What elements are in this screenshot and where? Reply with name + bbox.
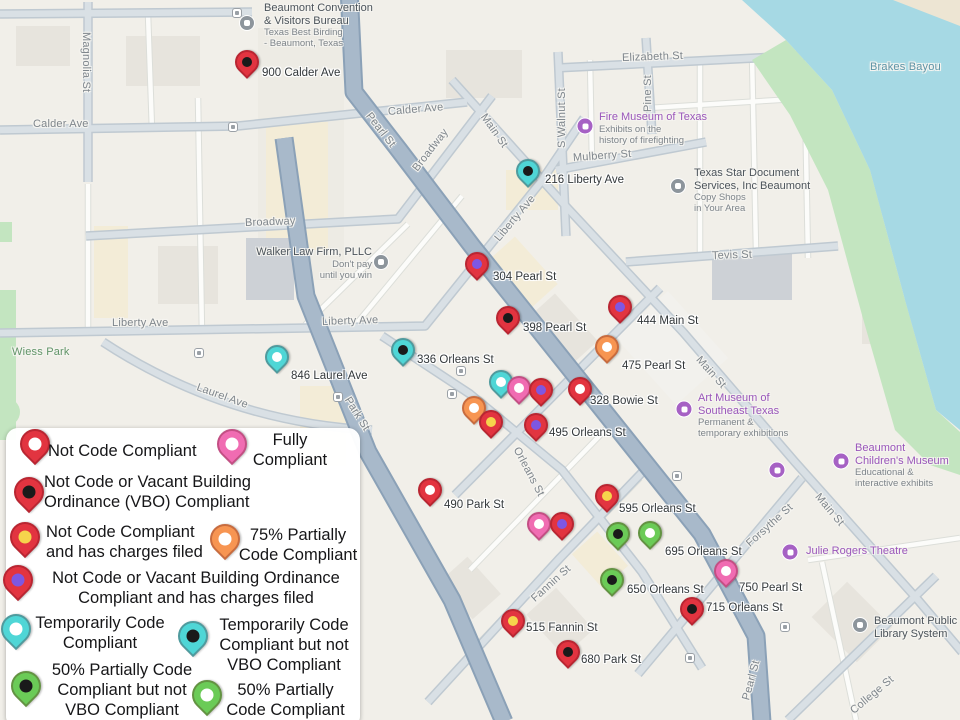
legend-item-label: Temporarily Code Compliant but not VBO C… bbox=[205, 615, 363, 675]
poi-label[interactable]: Beaumont Children's MuseumEducational & … bbox=[855, 442, 949, 489]
legend-pin-red-purple bbox=[0, 559, 39, 601]
map-pin-red-black[interactable] bbox=[491, 301, 525, 335]
street-label: Fannin St bbox=[529, 563, 573, 605]
pin-address-label: 595 Orleans St bbox=[619, 503, 696, 515]
map-pin-red-purple[interactable] bbox=[519, 408, 553, 442]
street-label: College St bbox=[848, 673, 896, 716]
poi-subtitle: Educational & interactive exhibits bbox=[855, 467, 949, 489]
poi-label[interactable]: Walker Law Firm, PLLCDon't pay until you… bbox=[256, 246, 372, 281]
pin-address-label: 715 Orleans St bbox=[706, 602, 783, 614]
shop-icon[interactable] bbox=[670, 178, 686, 194]
poi-glyph bbox=[244, 20, 250, 26]
map-pin-green-black[interactable] bbox=[595, 563, 629, 597]
street-label: Pearl St bbox=[740, 659, 762, 701]
poi-title: Julie Rogers Theatre bbox=[806, 545, 908, 558]
street-label: Wiess Park bbox=[12, 346, 70, 358]
street-label: Forsythe St bbox=[744, 501, 795, 549]
pin-address-label: 650 Orleans St bbox=[627, 584, 704, 596]
poi-title: Texas Star Document Services, Inc Beaumo… bbox=[694, 167, 810, 192]
map-viewport[interactable]: Magnolia StCalder AveCalder AveBroadwayB… bbox=[0, 0, 960, 720]
legend-panel: Not Code CompliantFully CompliantNot Cod… bbox=[6, 428, 360, 720]
pin-address-label: 475 Pearl St bbox=[622, 360, 685, 372]
map-pin-green-black[interactable] bbox=[601, 517, 635, 551]
street-label: Elizabeth St bbox=[622, 50, 683, 64]
map-pin-red-purple[interactable] bbox=[524, 373, 558, 407]
legend-item-label: Temporarily Code Compliant bbox=[30, 613, 170, 653]
poi-subtitle: Don't pay until you win bbox=[256, 259, 372, 281]
pin-address-label: 398 Pearl St bbox=[523, 322, 586, 334]
theatre-icon[interactable] bbox=[782, 544, 799, 561]
poi-label[interactable]: Fire Museum of TexasExhibits on the hist… bbox=[599, 111, 707, 146]
street-label: Laurel Ave bbox=[195, 381, 250, 411]
legend-pin-green-black bbox=[5, 665, 47, 707]
legend-item-label: Not Code or Vacant Building Ordinance Co… bbox=[36, 568, 356, 608]
legend-item-label: Not Code Compliant and has charges filed bbox=[46, 522, 216, 562]
museum-icon[interactable] bbox=[577, 118, 594, 135]
map-pin-red-purple[interactable] bbox=[460, 247, 494, 281]
street-label: Main St bbox=[478, 112, 510, 151]
pin-address-label: 900 Calder Ave bbox=[262, 67, 340, 79]
poi-subtitle: Permanent & temporary exhibitions bbox=[698, 417, 788, 439]
street-label: Calder Ave bbox=[33, 118, 89, 130]
pin-address-label: 216 Liberty Ave bbox=[545, 174, 624, 186]
map-pin-red-white[interactable] bbox=[413, 473, 447, 507]
briefcase-icon[interactable] bbox=[373, 254, 389, 270]
street-label: Orleans St bbox=[511, 445, 547, 498]
poi-subtitle: Texas Best Birding - Beaumont, Texas bbox=[264, 27, 373, 49]
map-pin-teal-black[interactable] bbox=[511, 154, 545, 188]
street-label: Calder Ave bbox=[387, 101, 443, 118]
legend-item-label: 75% Partially Code Compliant bbox=[233, 525, 363, 565]
street-label: Brakes Bayou bbox=[870, 61, 941, 73]
street-label: Broadway bbox=[410, 126, 451, 173]
poi-glyph bbox=[838, 458, 844, 464]
map-pin-red-purple[interactable] bbox=[545, 507, 579, 541]
poi-glyph bbox=[857, 622, 863, 628]
poi-label[interactable]: Art Museum of Southeast TexasPermanent &… bbox=[698, 392, 788, 439]
transit-stop-icon bbox=[685, 653, 695, 663]
poi-glyph bbox=[681, 406, 687, 412]
legend-item-label: Not Code Compliant bbox=[48, 441, 223, 461]
museum-icon[interactable] bbox=[833, 453, 850, 470]
poi-title: Fire Museum of Texas bbox=[599, 111, 707, 124]
museum-icon[interactable] bbox=[676, 401, 693, 418]
map-pin-red-black[interactable] bbox=[230, 45, 264, 79]
building-icon[interactable] bbox=[239, 15, 255, 31]
library-icon[interactable] bbox=[852, 617, 868, 633]
transit-stop-icon bbox=[672, 471, 682, 481]
map-pin-green-white[interactable] bbox=[633, 516, 667, 550]
transit-stop-icon bbox=[447, 389, 457, 399]
street-label: Main St bbox=[812, 491, 846, 528]
transit-stop-icon bbox=[780, 622, 790, 632]
pin-address-label: 695 Orleans St bbox=[665, 546, 742, 558]
poi-title: Beaumont Convention & Visitors Bureau bbox=[264, 2, 373, 27]
pin-address-label: 490 Park St bbox=[444, 499, 504, 511]
transit-stop-icon bbox=[194, 348, 204, 358]
poi-subtitle: Copy Shops in Your Area bbox=[694, 192, 810, 214]
street-label: Pine St bbox=[642, 75, 654, 112]
poi-glyph bbox=[378, 259, 384, 265]
museum-icon[interactable] bbox=[769, 462, 786, 479]
map-pin-teal-black[interactable] bbox=[386, 333, 420, 367]
map-pin-red-yellow[interactable] bbox=[496, 604, 530, 638]
poi-glyph bbox=[787, 549, 793, 555]
pin-address-label: 495 Orleans St bbox=[549, 427, 626, 439]
poi-label[interactable]: Texas Star Document Services, Inc Beaumo… bbox=[694, 167, 810, 214]
map-pin-red-black[interactable] bbox=[551, 635, 585, 669]
map-pin-red-purple[interactable] bbox=[603, 290, 637, 324]
street-label: Liberty Ave bbox=[112, 317, 168, 329]
legend-item-label: 50% Partially Code Compliant but not VBO… bbox=[42, 660, 202, 720]
poi-title: Art Museum of Southeast Texas bbox=[698, 392, 788, 417]
legend-item-label: Fully Compliant bbox=[240, 430, 340, 470]
street-label: Liberty Ave bbox=[322, 314, 379, 328]
street-label: S Walnut St bbox=[556, 88, 568, 148]
poi-label[interactable]: Julie Rogers Theatre bbox=[806, 545, 908, 558]
street-label: Broadway bbox=[245, 215, 296, 229]
legend-item-label: 50% Partially Code Compliant bbox=[218, 680, 353, 720]
poi-title: Beaumont Children's Museum bbox=[855, 442, 949, 467]
poi-title: Walker Law Firm, PLLC bbox=[256, 246, 372, 259]
street-label: Mulberry St bbox=[573, 148, 632, 164]
pin-address-label: 304 Pearl St bbox=[493, 271, 556, 283]
pin-address-label: 328 Bowie St bbox=[590, 395, 658, 407]
transit-stop-icon bbox=[456, 366, 466, 376]
pin-address-label: 680 Park St bbox=[581, 654, 641, 666]
street-label: Liberty Ave bbox=[492, 193, 537, 244]
poi-subtitle: Exhibits on the history of firefighting bbox=[599, 124, 707, 146]
pin-address-label: 750 Pearl St bbox=[739, 582, 802, 594]
poi-glyph bbox=[582, 123, 588, 129]
legend-item-label: Not Code or Vacant Building Ordinance (V… bbox=[44, 472, 284, 512]
map-pin-teal-white[interactable] bbox=[260, 340, 294, 374]
poi-title: Beaumont Public Library System bbox=[874, 615, 957, 640]
pin-address-label: 846 Laurel Ave bbox=[291, 370, 368, 382]
poi-glyph bbox=[774, 467, 780, 473]
map-pin-orange-white[interactable] bbox=[590, 330, 624, 364]
pin-address-label: 515 Fannin St bbox=[526, 622, 598, 634]
map-pin-red-black[interactable] bbox=[675, 592, 709, 626]
street-label: Tevis St bbox=[712, 249, 753, 262]
legend-pin-red-yellow bbox=[4, 516, 46, 558]
pin-address-label: 444 Main St bbox=[637, 315, 698, 327]
poi-glyph bbox=[675, 183, 681, 189]
poi-label[interactable]: Beaumont Convention & Visitors BureauTex… bbox=[264, 2, 373, 49]
pin-address-label: 336 Orleans St bbox=[417, 354, 494, 366]
transit-stop-icon bbox=[228, 122, 238, 132]
map-pin-pink-white[interactable] bbox=[709, 554, 743, 588]
transit-stop-icon bbox=[333, 392, 343, 402]
poi-label[interactable]: Beaumont Public Library System bbox=[874, 615, 957, 640]
street-label: Main St bbox=[694, 354, 729, 391]
street-label: Magnolia St bbox=[80, 32, 92, 92]
